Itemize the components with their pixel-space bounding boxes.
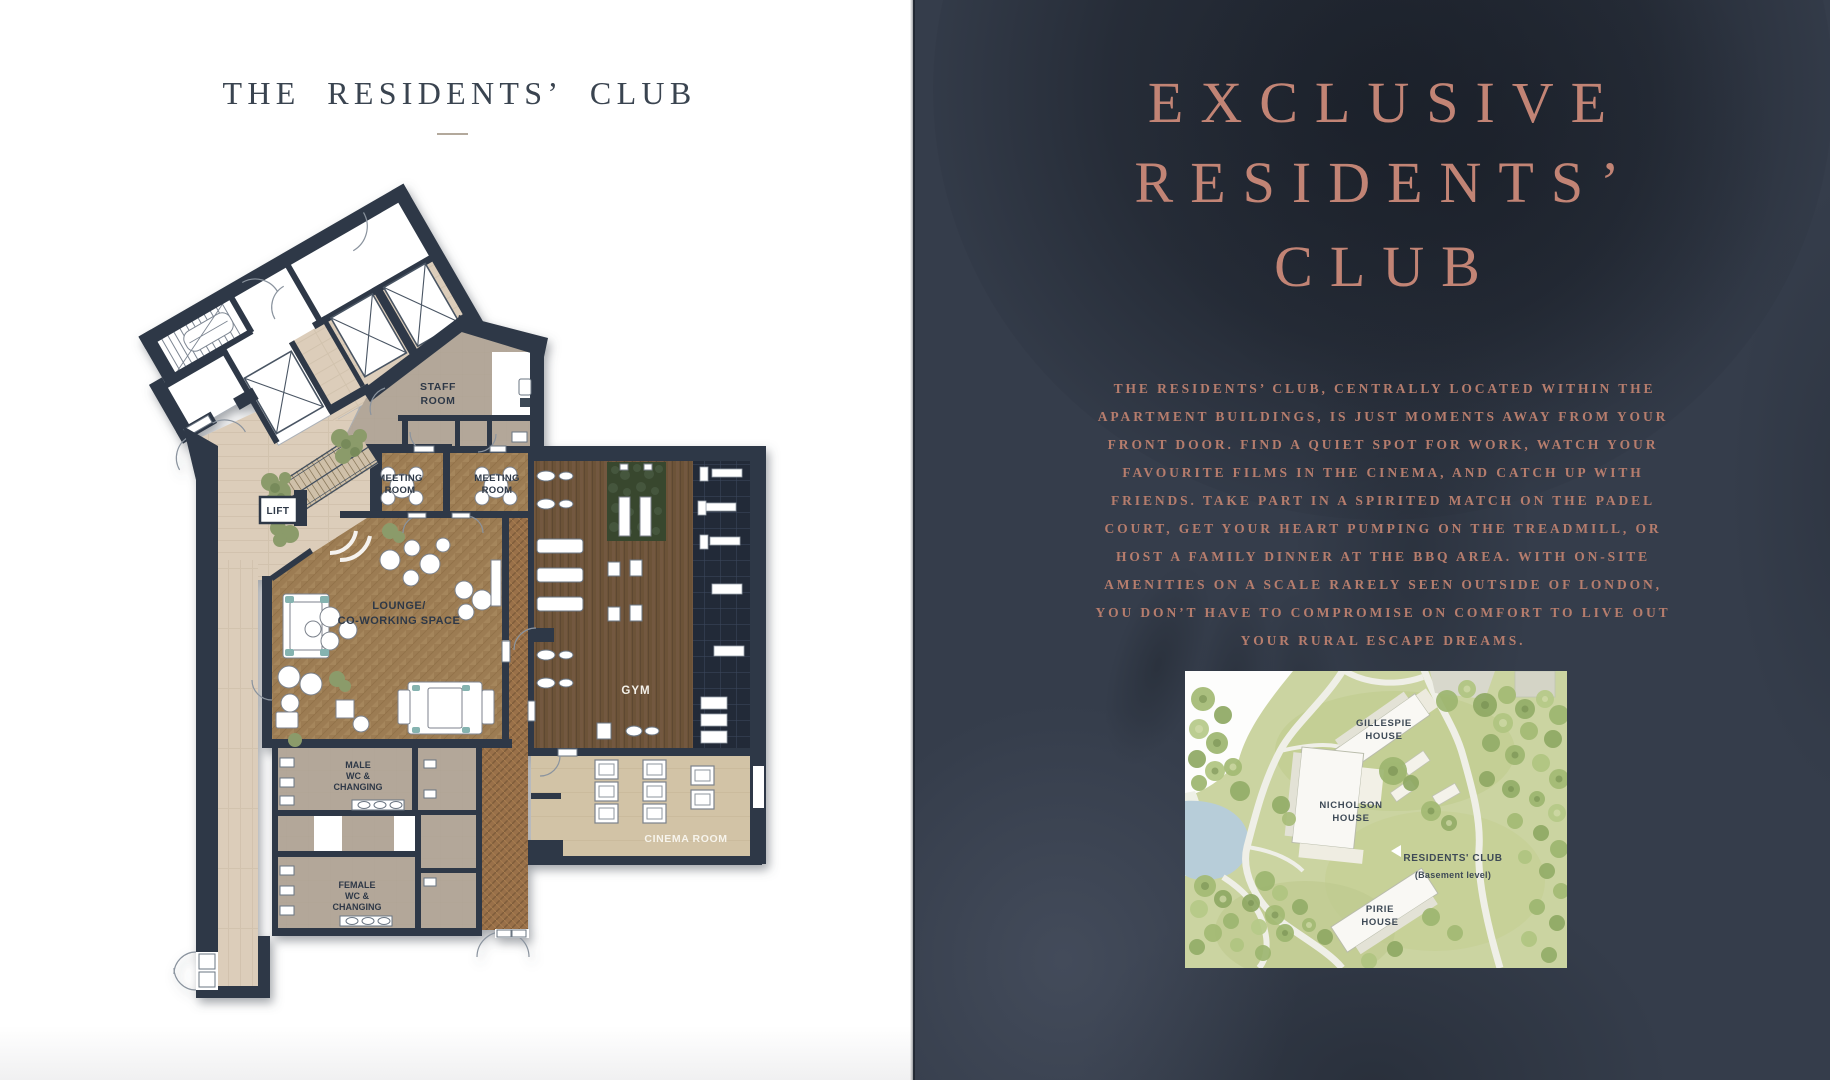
svg-text:CHANGING: CHANGING <box>333 902 382 912</box>
svg-text:MEETING: MEETING <box>377 473 422 484</box>
svg-text:STAFF: STAFF <box>420 381 456 393</box>
svg-text:NICHOLSON: NICHOLSON <box>1319 800 1382 811</box>
svg-text:WC &: WC & <box>346 771 370 781</box>
svg-text:WC &: WC & <box>345 891 369 901</box>
svg-text:PIRIE: PIRIE <box>1366 904 1394 915</box>
svg-text:HOUSE: HOUSE <box>1332 813 1369 824</box>
svg-text:LOUNGE/: LOUNGE/ <box>372 600 426 612</box>
svg-text:ROOM: ROOM <box>420 395 455 407</box>
svg-text:RESIDENTS' CLUB: RESIDENTS' CLUB <box>1403 853 1502 864</box>
svg-text:HOUSE: HOUSE <box>1361 917 1398 928</box>
svg-text:CHANGING: CHANGING <box>334 782 383 792</box>
svg-text:HOUSE: HOUSE <box>1365 731 1402 742</box>
svg-text:MEETING: MEETING <box>474 473 519 484</box>
svg-text:CINEMA ROOM: CINEMA ROOM <box>644 833 727 845</box>
svg-text:MALE: MALE <box>345 760 371 770</box>
svg-text:ROOM: ROOM <box>482 485 513 496</box>
svg-text:GYM: GYM <box>621 685 650 697</box>
svg-text:CO-WORKING SPACE: CO-WORKING SPACE <box>338 615 461 627</box>
svg-text:GILLESPIE: GILLESPIE <box>1356 718 1412 729</box>
svg-text:(Basement level): (Basement level) <box>1415 870 1491 880</box>
svg-text:FEMALE: FEMALE <box>339 880 376 890</box>
svg-text:LIFT: LIFT <box>266 506 289 517</box>
svg-text:ROOM: ROOM <box>385 485 416 496</box>
